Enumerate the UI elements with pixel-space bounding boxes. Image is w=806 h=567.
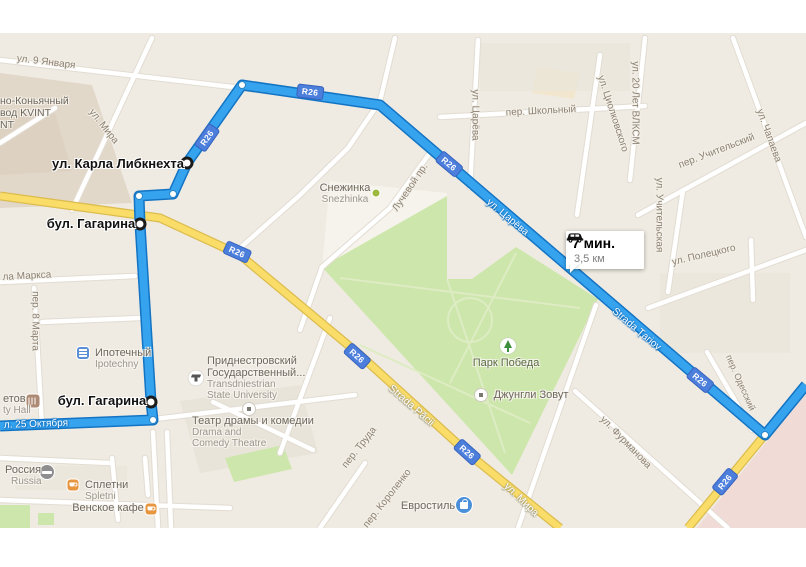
poi-university[interactable]: Приднестровский Государственный... Trans… xyxy=(207,355,305,401)
poi-name: но-Коньячный xyxy=(0,95,69,107)
poi-dot-icon[interactable] xyxy=(243,403,255,415)
poi-alt-name: Comedy Theatre xyxy=(192,438,314,449)
tooltip-pointer xyxy=(570,263,580,273)
poi-name: Сплетни xyxy=(85,479,128,491)
poi-alt-name: Transdniestrian xyxy=(207,379,305,390)
poi-name: Россия xyxy=(5,464,42,476)
poi-alt-name: Drama and xyxy=(192,427,314,438)
waypoint-label: ул. Карла Либкнехта xyxy=(52,157,184,171)
poi-alt-name: Spletni xyxy=(85,491,128,502)
cafe-icon[interactable] xyxy=(68,480,79,491)
university-icon[interactable] xyxy=(189,371,204,386)
car-icon xyxy=(566,231,584,244)
shop-icon[interactable] xyxy=(456,497,472,513)
poi-jungle[interactable]: Джунгли Зовут xyxy=(494,390,569,402)
poi-name: Государственный... xyxy=(207,367,305,379)
street-label: ул. 20 Лет ВЛКСМ xyxy=(629,61,640,145)
route-vertex-dot xyxy=(239,82,245,88)
poi-alt-name: State University xyxy=(207,390,305,401)
map-canvas[interactable]: ул. 9 Января ул. Мира ул. Царёва пер. Шк… xyxy=(0,33,806,528)
route-distance: 3,5 км xyxy=(574,253,636,265)
poi-name: NT xyxy=(0,119,69,131)
cafe-icon[interactable] xyxy=(146,504,157,515)
poi-name: Театр драмы и комедии xyxy=(192,415,314,427)
map-graphics xyxy=(0,33,806,528)
poi-vienna-cafe[interactable]: Венское кафе xyxy=(72,503,144,515)
poi-ipoteka[interactable]: Ипотечный Ipotechny xyxy=(95,347,151,370)
street-label: ул. Царёва xyxy=(469,89,480,140)
poi-name: вод KVINT xyxy=(0,107,69,119)
poi-city-hall[interactable]: етов ty Hall xyxy=(3,393,31,416)
poi-name: Ипотечный xyxy=(95,347,151,359)
route-vertex-dot xyxy=(762,432,768,438)
screenshot-stage: ул. 9 Января ул. Мира ул. Царёва пер. Шк… xyxy=(0,0,806,567)
poi-alt-name: Snezhinka xyxy=(320,195,371,206)
waypoint-label: бул. Гагарина xyxy=(47,217,136,231)
poi-park-pobeda[interactable]: Парк Победа xyxy=(473,358,540,370)
route-vertex-dot xyxy=(150,417,156,423)
bank-icon[interactable] xyxy=(77,347,89,359)
poi-dot-icon[interactable] xyxy=(475,389,487,401)
poi-name: Приднестровский xyxy=(207,355,305,367)
poi-spletni[interactable]: Сплетни Spletni xyxy=(85,479,128,502)
route-vertex-dot xyxy=(136,193,142,199)
poi-russia[interactable]: Россия Russia xyxy=(5,464,42,487)
poi-alt-name: Ipotechny xyxy=(95,359,151,370)
poi-snezhinka[interactable]: Снежинка Snezhinka xyxy=(320,183,371,205)
route-street-label: л. 25 Октября xyxy=(4,419,68,432)
poi-alt-name: Russia xyxy=(11,476,42,487)
park-tree-icon[interactable] xyxy=(500,338,516,354)
street-label: пер. 8 Марта xyxy=(29,291,40,351)
waypoint-label: бул. Гагарина xyxy=(58,394,147,408)
poi-evrostil[interactable]: Евростиль xyxy=(401,501,455,513)
poi-kvint[interactable]: но-Коньячный вод KVINT NT xyxy=(0,95,69,131)
hotel-icon[interactable] xyxy=(40,465,54,479)
poi-name: етов xyxy=(3,393,31,405)
poi-name: Снежинка xyxy=(320,183,371,195)
poi-alt-name: ty Hall xyxy=(3,405,31,416)
poi-dot-icon[interactable] xyxy=(372,189,381,198)
poi-theatre[interactable]: Театр драмы и комедии Drama and Comedy T… xyxy=(192,415,314,449)
route-vertex-dot xyxy=(170,191,176,197)
street-label: ул. Учительская xyxy=(653,178,664,253)
